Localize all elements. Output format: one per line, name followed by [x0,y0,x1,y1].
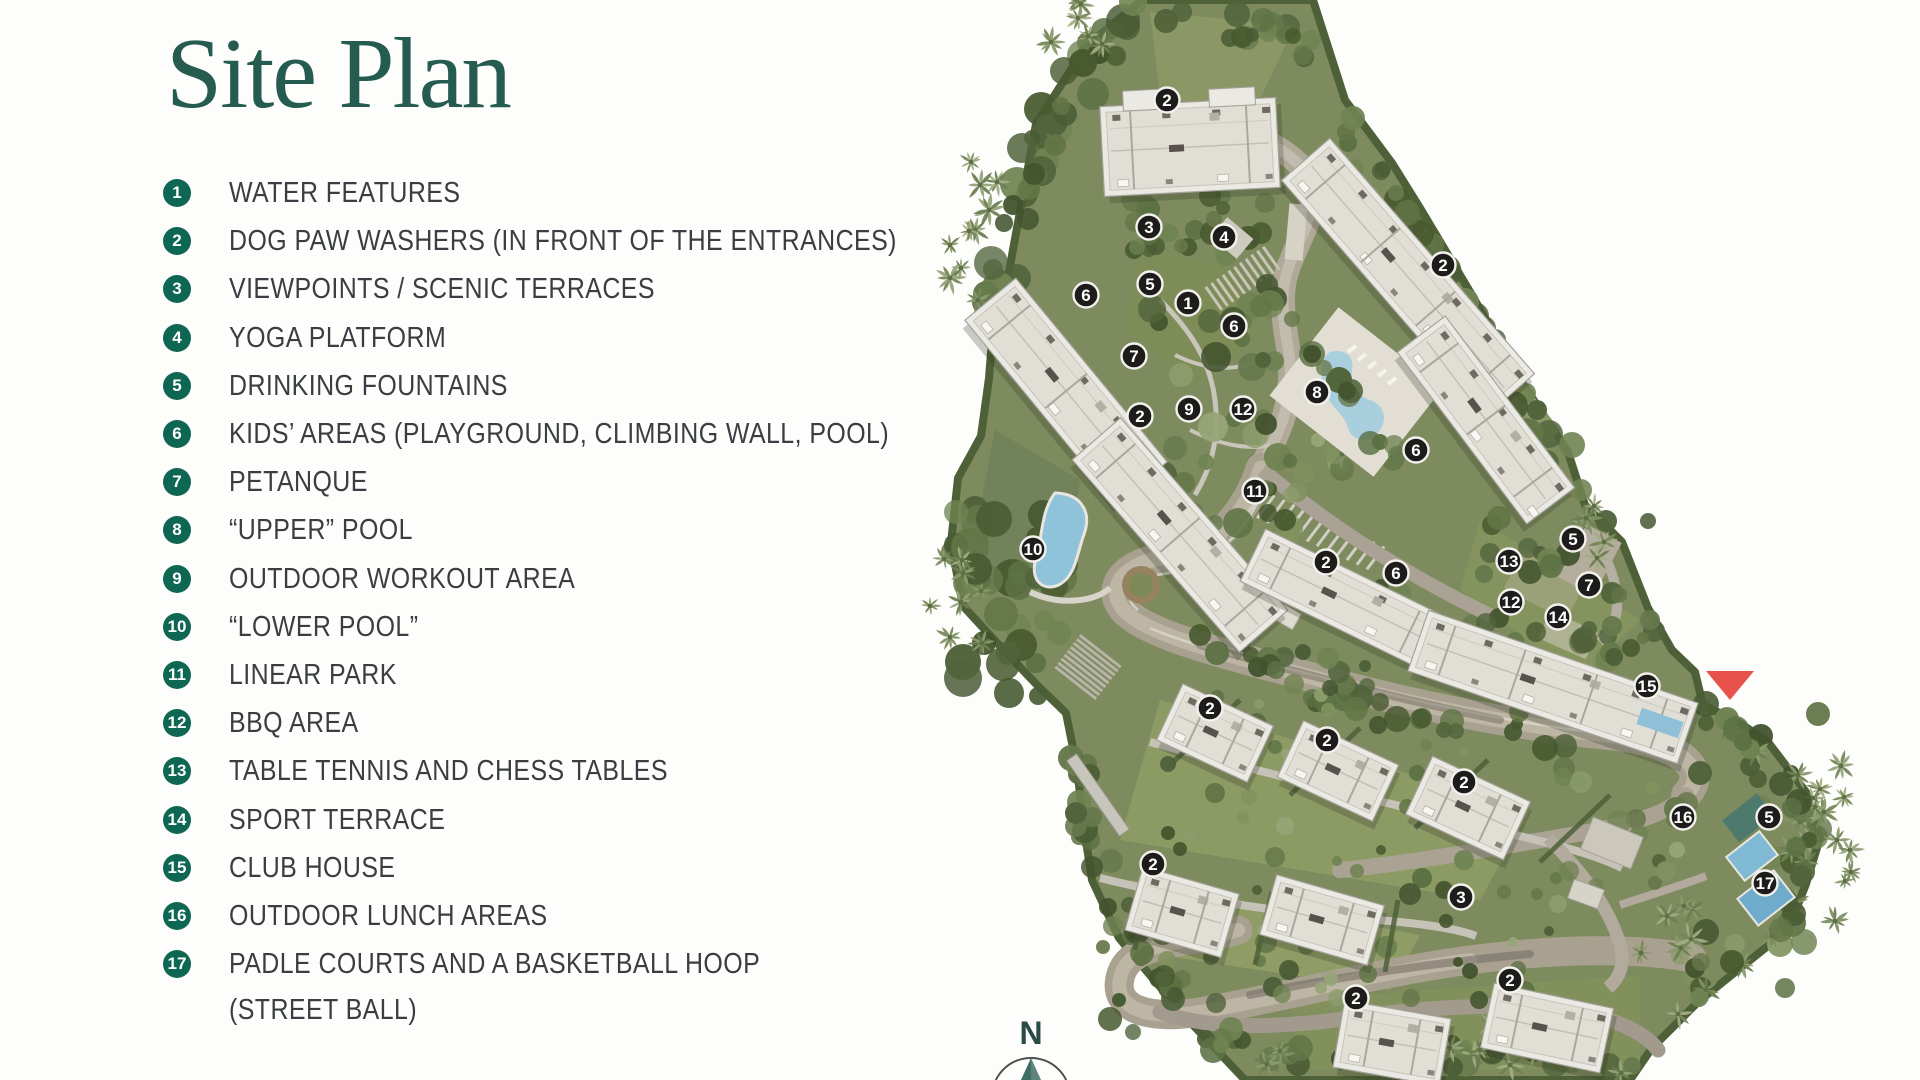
svg-text:2: 2 [1321,553,1330,572]
svg-text:2: 2 [1459,773,1468,792]
svg-text:5: 5 [1568,530,1577,549]
svg-text:6: 6 [1391,564,1400,583]
svg-text:7: 7 [1129,347,1138,366]
svg-text:16: 16 [1674,808,1693,827]
svg-text:9: 9 [1184,400,1193,419]
svg-text:6: 6 [1411,441,1420,460]
svg-text:2: 2 [1505,971,1514,990]
svg-text:5: 5 [1145,275,1154,294]
svg-text:2: 2 [1205,699,1214,718]
svg-text:3: 3 [1144,218,1153,237]
svg-text:3: 3 [1456,888,1465,907]
svg-text:2: 2 [1351,989,1360,1008]
svg-text:15: 15 [1638,677,1657,696]
svg-text:17: 17 [1756,874,1775,893]
svg-text:4: 4 [1219,228,1229,247]
svg-text:1: 1 [1183,294,1192,313]
svg-text:2: 2 [1322,731,1331,750]
svg-text:12: 12 [1234,400,1253,419]
svg-text:8: 8 [1312,383,1321,402]
svg-text:2: 2 [1162,91,1171,110]
svg-text:6: 6 [1229,317,1238,336]
svg-text:6: 6 [1081,286,1090,305]
svg-text:2: 2 [1148,855,1157,874]
svg-text:14: 14 [1549,608,1568,627]
svg-text:2: 2 [1438,256,1447,275]
svg-text:2: 2 [1135,407,1144,426]
svg-text:N: N [1019,1015,1042,1051]
svg-text:12: 12 [1502,593,1521,612]
svg-text:7: 7 [1584,576,1593,595]
svg-text:5: 5 [1764,808,1773,827]
svg-text:10: 10 [1024,540,1043,559]
svg-text:13: 13 [1500,552,1519,571]
svg-text:11: 11 [1246,482,1264,501]
